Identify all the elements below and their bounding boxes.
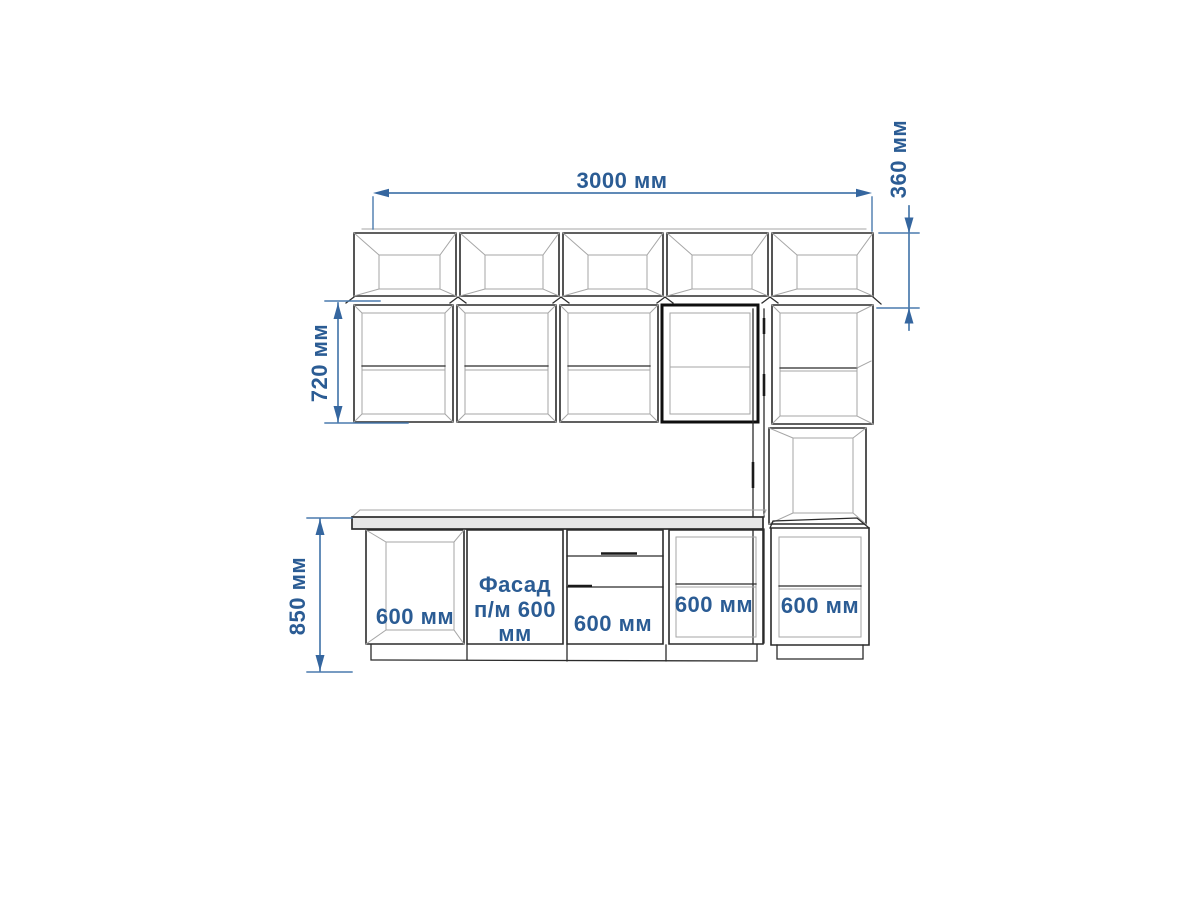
base-cabinet-1: 600 мм — [366, 530, 464, 644]
middle-cabinet-4-door — [662, 305, 758, 422]
top-row-bottom-joints — [346, 297, 881, 304]
base-cabinet-2-dishwasher-facade: Фасад п/м 600 мм — [467, 530, 563, 646]
cabinet-outline — [772, 233, 873, 296]
tall-cabinet-label: 600 мм — [781, 593, 859, 618]
base-cabinet-4-label: 600 мм — [675, 592, 753, 617]
niche-inner-box — [769, 428, 866, 524]
cabinet-outline — [667, 233, 768, 296]
base-cabinet-1-label: 600 мм — [376, 604, 454, 629]
dimension-top-cabinet-height: 360 мм — [877, 120, 919, 330]
extension-lines — [877, 233, 919, 308]
top-cabinet-3 — [563, 233, 663, 296]
drawer-lines — [567, 556, 663, 587]
cabinet-frame — [772, 305, 873, 424]
cabinet-frame — [779, 537, 861, 637]
countertop-back-edge — [352, 510, 766, 517]
cabinet-frame — [457, 305, 556, 422]
base-cabinets-row: 600 мм Фасад п/м 600 мм 600 мм 600 мм — [366, 518, 869, 661]
arrow-up-icon — [334, 303, 343, 319]
top-cabinet-2 — [460, 233, 559, 296]
extension-lines — [307, 518, 352, 672]
cabinet-inner-box — [563, 233, 663, 296]
cabinet-frame — [560, 305, 658, 422]
dimension-wall-height-label: 720 мм — [307, 324, 332, 402]
middle-cabinet-2 — [457, 305, 556, 422]
extension-lines — [373, 197, 872, 231]
kitchen-elevation-page: 600 мм Фасад п/м 600 мм 600 мм 600 мм — [0, 0, 1201, 900]
countertop-band — [352, 517, 763, 529]
dimension-base-cabinet-height: 850 мм — [285, 518, 352, 672]
dimension-total-width-label: 3000 мм — [576, 168, 667, 193]
arrow-down-icon — [316, 655, 325, 671]
facade-label-line-3: мм — [498, 621, 532, 646]
cabinet-outline — [560, 305, 658, 422]
wall-cabinets-middle-row — [354, 305, 873, 424]
cabinet-outline — [460, 233, 559, 296]
top-cabinet-4 — [667, 233, 768, 296]
cabinet-inner-box — [667, 233, 768, 296]
drawer-handle — [568, 554, 637, 587]
cabinet-top-panel — [770, 518, 869, 528]
facade-label-line-2: п/м 600 — [474, 597, 556, 622]
dimension-top-height-label: 360 мм — [886, 120, 911, 198]
cabinet-outline — [772, 305, 873, 424]
base-cabinet-3-drawers: 600 мм — [567, 530, 663, 644]
cabinet-outline — [457, 305, 556, 422]
tall-cabinet-upper-section — [772, 305, 873, 424]
cabinet-frame — [354, 305, 453, 422]
arrow-up-icon — [905, 308, 914, 324]
middle-cabinet-1 — [354, 305, 453, 422]
plinth — [371, 645, 863, 661]
cabinet-outline — [563, 233, 663, 296]
door-inner — [670, 313, 750, 414]
arrow-down-icon — [334, 406, 343, 422]
dimension-base-height-label: 850 мм — [285, 557, 310, 635]
arrow-right-icon — [856, 189, 872, 198]
base-cabinet-4: 600 мм — [669, 530, 763, 644]
cabinet-outline — [354, 233, 456, 296]
tall-cabinet-open-niche — [769, 428, 866, 524]
cabinet-inner-box — [772, 233, 873, 296]
countertop — [352, 510, 766, 529]
facade-label-line-1: Фасад — [479, 572, 551, 597]
arrow-up-icon — [316, 519, 325, 535]
top-cabinet-1 — [354, 233, 456, 296]
cabinet-inner-box — [460, 233, 559, 296]
arrow-down-icon — [905, 218, 914, 234]
cabinet-outline — [354, 305, 453, 422]
kitchen-elevation-drawing: 600 мм Фасад п/м 600 мм 600 мм 600 мм — [0, 0, 1201, 900]
base-cabinet-3-label: 600 мм — [574, 611, 652, 636]
dimension-total-width: 3000 мм — [373, 168, 872, 231]
cabinet-inner-box — [354, 233, 456, 296]
top-cabinet-5 — [772, 233, 873, 296]
door-outline — [662, 305, 758, 422]
niche-outline — [769, 428, 866, 524]
tall-cabinet-base-section: 600 мм — [770, 518, 869, 645]
middle-cabinet-3 — [560, 305, 658, 422]
wall-cabinets-top-row — [346, 229, 881, 304]
dimension-wall-cabinet-height: 720 мм — [307, 301, 408, 423]
arrow-left-icon — [373, 189, 389, 198]
